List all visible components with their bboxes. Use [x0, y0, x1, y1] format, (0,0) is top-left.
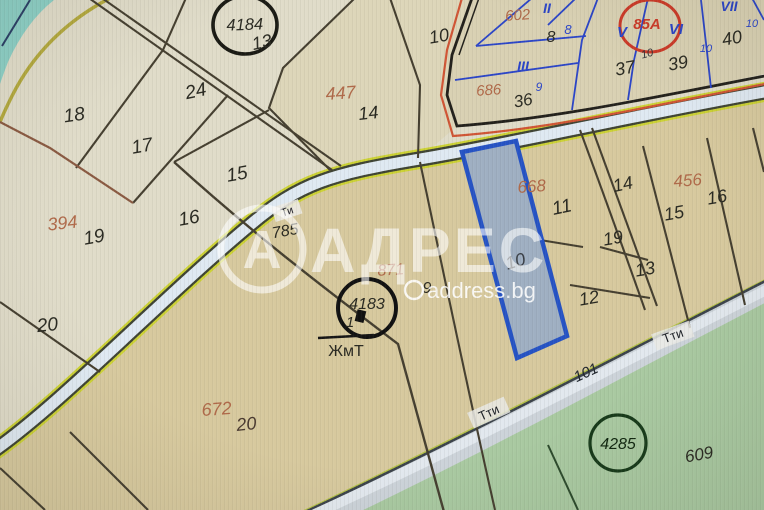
parcel-label-672: 672 — [201, 398, 232, 420]
parcel-label-14: 14 — [357, 102, 379, 124]
parcel-label-10: 10 — [427, 25, 450, 48]
parcel-label-12: 12 — [577, 287, 600, 310]
circle-label-4183: 4183 — [349, 296, 385, 313]
parcel-label-40: 40 — [720, 27, 743, 50]
parcel-label-447: 447 — [325, 82, 357, 104]
parcel-label-13b: 13 — [633, 258, 656, 281]
parcel-label-394: 394 — [46, 212, 78, 235]
parcel-label-85A: 85A — [633, 16, 661, 33]
parcel-label-16: 16 — [177, 206, 202, 230]
parcel-label-36: 36 — [512, 89, 534, 111]
parcel-label-18: 18 — [62, 104, 86, 128]
watermark-logo-letter: А — [243, 220, 282, 280]
zone-label-zhmt: ЖмТ — [328, 343, 364, 360]
watermark-brand: АДРЕС — [310, 216, 547, 286]
map-canvas[interactable]: 18 24 17 15 16 394 19 20 4184 13 447 14 … — [0, 0, 764, 510]
regulation-label-III: III — [517, 58, 530, 74]
regulation-label-8: 8 — [564, 22, 572, 37]
cadastral-map[interactable]: 18 24 17 15 16 394 19 20 4184 13 447 14 … — [0, 0, 764, 510]
parcel-label-8: 8 — [547, 29, 556, 46]
parcel-label-456: 456 — [673, 170, 703, 191]
parcel-label-20b: 20 — [234, 413, 257, 435]
regulation-label-VI: VI — [669, 21, 684, 38]
regulation-label-10a: 10 — [746, 18, 759, 30]
parcel-label-20: 20 — [35, 314, 60, 337]
regulation-label-VII: VII — [720, 0, 738, 14]
regulation-label-II: II — [543, 0, 552, 16]
parcel-label-14b: 14 — [611, 172, 635, 196]
parcel-label-668: 668 — [517, 176, 547, 197]
parcel-label-686: 686 — [476, 81, 503, 100]
parcel-label-602: 602 — [505, 6, 532, 25]
parcel-label-19b: 19 — [601, 227, 624, 250]
parcel-label-1: 1 — [346, 314, 354, 331]
regulation-label-9: 9 — [536, 80, 543, 94]
parcel-label-39: 39 — [666, 52, 689, 75]
parcel-label-15: 15 — [225, 162, 250, 186]
circle-label-4285: 4285 — [600, 436, 636, 453]
parcel-label-19: 19 — [82, 225, 107, 249]
watermark-site: address.bg — [427, 278, 536, 303]
regulation-label-10b: 10 — [700, 43, 713, 55]
parcel-label-13: 13 — [250, 30, 274, 54]
